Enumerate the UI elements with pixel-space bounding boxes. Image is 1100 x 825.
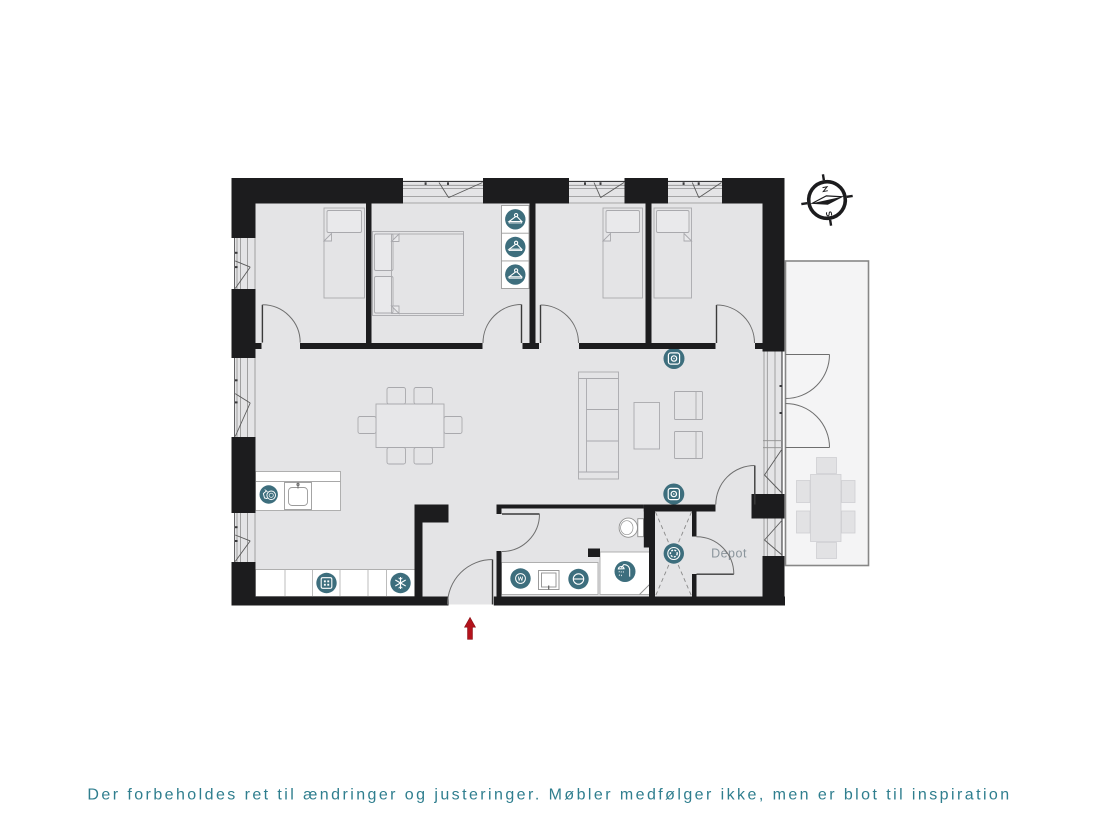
svg-text:Depot: Depot (711, 547, 747, 561)
svg-text:Der forbeholdes ret til ændrin: Der forbeholdes ret til ændringer og jus… (87, 787, 1011, 804)
